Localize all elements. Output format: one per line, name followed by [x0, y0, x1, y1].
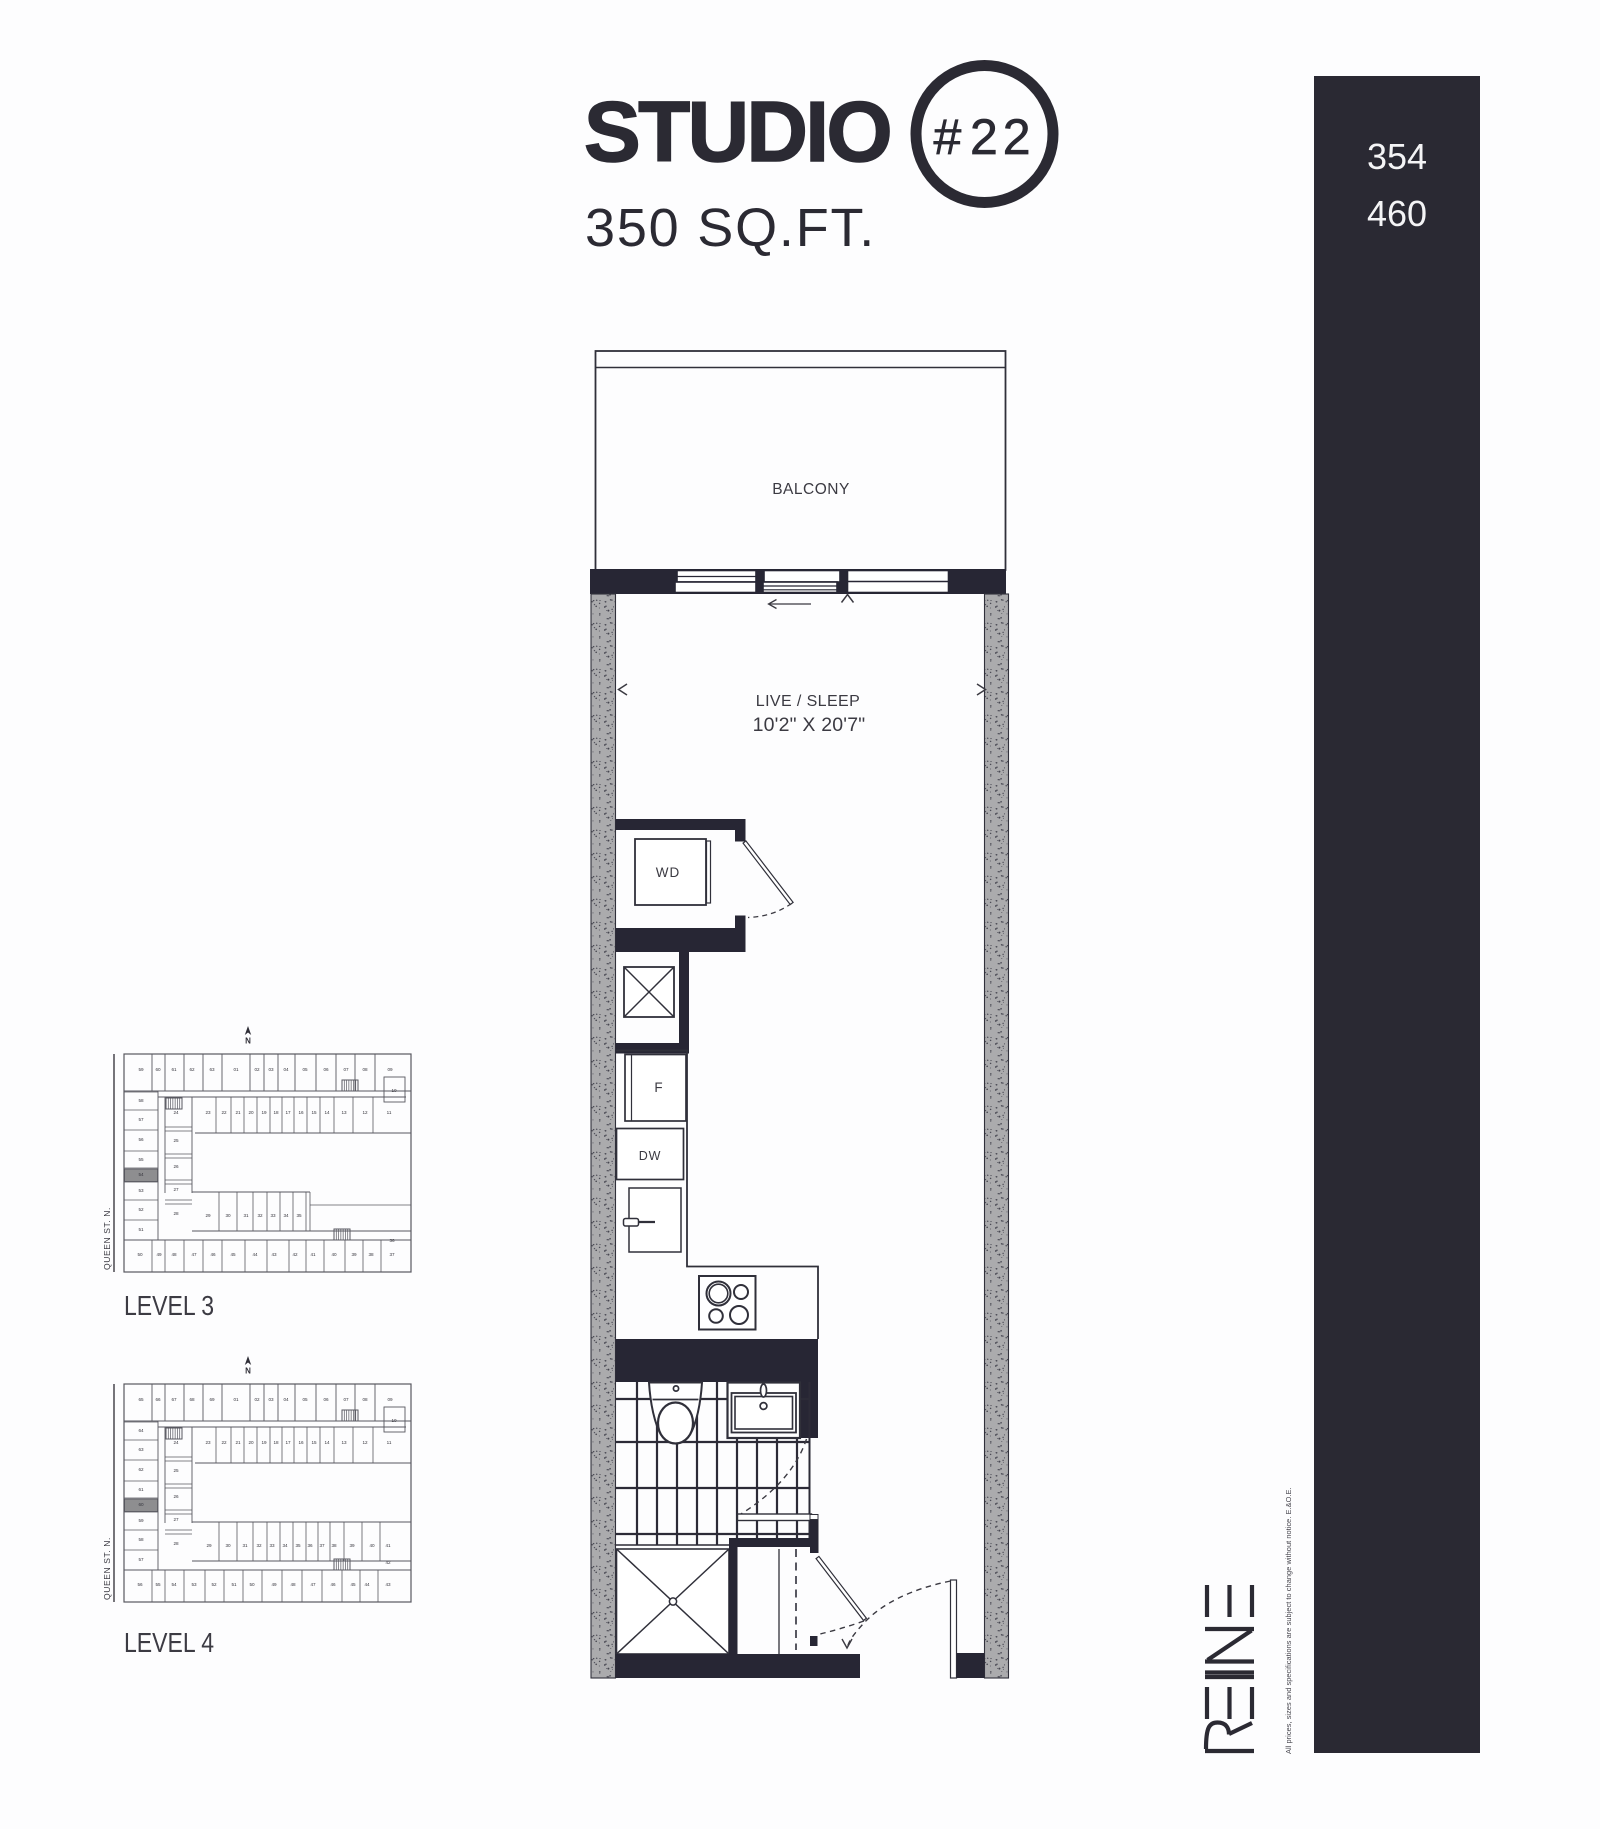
svg-text:21: 21 [235, 1110, 241, 1115]
svg-text:46: 46 [210, 1252, 216, 1257]
svg-text:LEVEL 4: LEVEL 4 [124, 1627, 214, 1658]
svg-text:56: 56 [138, 1137, 144, 1142]
svg-text:17: 17 [285, 1440, 291, 1445]
svg-text:15: 15 [311, 1440, 317, 1445]
svg-text:41: 41 [385, 1543, 391, 1548]
svg-text:43: 43 [385, 1582, 391, 1587]
svg-text:44: 44 [364, 1582, 370, 1587]
svg-text:23: 23 [205, 1440, 211, 1445]
svg-text:40: 40 [331, 1252, 337, 1257]
svg-text:36: 36 [389, 1238, 395, 1243]
svg-text:DW: DW [639, 1149, 661, 1163]
svg-text:55: 55 [155, 1582, 161, 1587]
svg-text:45: 45 [350, 1582, 356, 1587]
svg-text:05: 05 [302, 1067, 308, 1072]
svg-text:18: 18 [273, 1440, 279, 1445]
svg-text:44: 44 [252, 1252, 258, 1257]
svg-text:49: 49 [271, 1582, 277, 1587]
svg-text:63: 63 [209, 1067, 215, 1072]
svg-text:04: 04 [283, 1067, 289, 1072]
svg-text:62: 62 [189, 1067, 195, 1072]
svg-text:04: 04 [283, 1397, 289, 1402]
svg-text:28: 28 [173, 1211, 179, 1216]
svg-text:19: 19 [261, 1110, 267, 1115]
svg-text:24: 24 [173, 1110, 179, 1115]
svg-text:51: 51 [138, 1227, 144, 1232]
svg-text:38: 38 [368, 1252, 374, 1257]
svg-text:29: 29 [205, 1213, 211, 1218]
svg-text:11: 11 [387, 1110, 392, 1115]
svg-text:01: 01 [233, 1067, 239, 1072]
svg-text:QUEEN ST. N.: QUEEN ST. N. [102, 1207, 112, 1270]
svg-text:07: 07 [343, 1067, 349, 1072]
svg-text:13: 13 [341, 1110, 347, 1115]
svg-text:61: 61 [138, 1487, 144, 1492]
svg-text:62: 62 [138, 1467, 144, 1472]
svg-text:26: 26 [173, 1164, 179, 1169]
svg-text:19: 19 [261, 1440, 267, 1445]
svg-text:59: 59 [138, 1067, 144, 1072]
svg-text:23: 23 [205, 1110, 211, 1115]
svg-text:54: 54 [138, 1172, 144, 1177]
svg-text:09: 09 [387, 1397, 393, 1402]
svg-text:08: 08 [362, 1067, 368, 1072]
svg-text:06: 06 [323, 1067, 329, 1072]
svg-text:LIVE / SLEEP: LIVE / SLEEP [756, 693, 860, 710]
svg-text:34: 34 [282, 1543, 288, 1548]
svg-text:01: 01 [233, 1397, 239, 1402]
svg-text:05: 05 [302, 1397, 308, 1402]
svg-text:02: 02 [254, 1067, 260, 1072]
svg-text:29: 29 [206, 1543, 212, 1548]
svg-text:33: 33 [270, 1213, 276, 1218]
svg-text:53: 53 [138, 1188, 144, 1193]
svg-text:50: 50 [137, 1252, 143, 1257]
svg-text:35: 35 [295, 1543, 301, 1548]
svg-text:460: 460 [1367, 193, 1427, 234]
svg-text:16: 16 [298, 1110, 304, 1115]
svg-text:59: 59 [138, 1518, 144, 1523]
svg-text:17: 17 [285, 1110, 291, 1115]
svg-text:WD: WD [656, 865, 681, 880]
svg-text:14: 14 [324, 1110, 330, 1115]
svg-text:65: 65 [138, 1397, 144, 1402]
svg-text:10: 10 [391, 1088, 397, 1093]
svg-text:14: 14 [324, 1440, 330, 1445]
svg-text:12: 12 [362, 1110, 368, 1115]
svg-text:QUEEN ST. N.: QUEEN ST. N. [102, 1537, 112, 1600]
svg-text:38: 38 [331, 1543, 337, 1548]
svg-text:39: 39 [349, 1543, 355, 1548]
svg-text:41: 41 [310, 1252, 316, 1257]
svg-text:09: 09 [387, 1067, 393, 1072]
svg-text:STUDIO: STUDIO [584, 85, 890, 180]
svg-text:37: 37 [389, 1252, 395, 1257]
svg-text:36: 36 [307, 1543, 313, 1548]
svg-text:50: 50 [249, 1582, 255, 1587]
svg-text:68: 68 [189, 1397, 195, 1402]
svg-text:22: 22 [221, 1110, 227, 1115]
svg-text:BALCONY: BALCONY [772, 481, 850, 498]
svg-text:37: 37 [319, 1543, 325, 1548]
svg-text:49: 49 [156, 1252, 162, 1257]
svg-text:52: 52 [138, 1207, 144, 1212]
svg-text:20: 20 [248, 1440, 254, 1445]
svg-text:30: 30 [225, 1213, 231, 1218]
svg-text:All prices, sizes and specific: All prices, sizes and specifications are… [1284, 1487, 1293, 1754]
svg-text:31: 31 [243, 1213, 249, 1218]
svg-text:57: 57 [138, 1557, 144, 1562]
svg-text:08: 08 [362, 1397, 368, 1402]
svg-text:06: 06 [323, 1397, 329, 1402]
svg-text:18: 18 [273, 1110, 279, 1115]
svg-text:27: 27 [173, 1517, 179, 1522]
svg-text:48: 48 [290, 1582, 296, 1587]
svg-text:02: 02 [254, 1397, 260, 1402]
svg-text:58: 58 [138, 1098, 144, 1103]
svg-text:53: 53 [191, 1582, 197, 1587]
svg-text:LEVEL 3: LEVEL 3 [124, 1290, 214, 1321]
svg-text:34: 34 [283, 1213, 289, 1218]
svg-text:12: 12 [362, 1440, 368, 1445]
svg-text:35: 35 [296, 1213, 302, 1218]
svg-text:58: 58 [138, 1537, 144, 1542]
svg-text:N: N [245, 1037, 251, 1046]
svg-text:39: 39 [351, 1252, 357, 1257]
svg-text:30: 30 [225, 1543, 231, 1548]
svg-text:31: 31 [242, 1543, 248, 1548]
svg-text:10: 10 [391, 1418, 397, 1423]
svg-text:350 SQ.FT.: 350 SQ.FT. [585, 198, 876, 258]
svg-text:40: 40 [369, 1543, 375, 1548]
svg-text:32: 32 [257, 1213, 263, 1218]
svg-text:24: 24 [173, 1440, 179, 1445]
svg-text:56: 56 [137, 1582, 143, 1587]
svg-text:51: 51 [231, 1582, 237, 1587]
svg-text:22: 22 [221, 1440, 227, 1445]
svg-text:60: 60 [138, 1502, 144, 1507]
svg-text:03: 03 [268, 1397, 274, 1402]
svg-text:15: 15 [311, 1110, 317, 1115]
svg-text:63: 63 [138, 1447, 144, 1452]
svg-text:354: 354 [1367, 136, 1427, 177]
svg-text:33: 33 [269, 1543, 275, 1548]
svg-text:F: F [654, 1080, 663, 1095]
svg-text:54: 54 [171, 1582, 177, 1587]
svg-text:32: 32 [256, 1543, 262, 1548]
svg-text:27: 27 [173, 1187, 179, 1192]
svg-text:22: 22 [970, 109, 1036, 165]
svg-text:11: 11 [387, 1440, 392, 1445]
svg-text:52: 52 [211, 1582, 217, 1587]
svg-text:43: 43 [271, 1252, 277, 1257]
svg-text:48: 48 [171, 1252, 177, 1257]
svg-text:03: 03 [268, 1067, 274, 1072]
svg-text:42: 42 [292, 1252, 298, 1257]
svg-text:26: 26 [173, 1494, 179, 1499]
svg-text:55: 55 [138, 1157, 144, 1162]
svg-text:42: 42 [385, 1560, 391, 1565]
svg-text:47: 47 [191, 1252, 197, 1257]
svg-text:25: 25 [173, 1468, 179, 1473]
svg-text:07: 07 [343, 1397, 349, 1402]
svg-text:66: 66 [155, 1397, 161, 1402]
svg-text:61: 61 [171, 1067, 177, 1072]
svg-text:13: 13 [341, 1440, 347, 1445]
svg-text:45: 45 [230, 1252, 236, 1257]
svg-text:10'2" X 20'7": 10'2" X 20'7" [753, 714, 866, 736]
svg-text:46: 46 [330, 1582, 336, 1587]
svg-text:N: N [245, 1367, 251, 1376]
svg-text:67: 67 [171, 1397, 177, 1402]
svg-text:25: 25 [173, 1138, 179, 1143]
svg-text:28: 28 [173, 1541, 179, 1546]
svg-text:20: 20 [248, 1110, 254, 1115]
svg-text:21: 21 [235, 1440, 241, 1445]
svg-text:64: 64 [138, 1428, 144, 1433]
svg-text:#: # [934, 109, 962, 165]
svg-text:60: 60 [155, 1067, 161, 1072]
svg-text:47: 47 [310, 1582, 316, 1587]
svg-text:16: 16 [298, 1440, 304, 1445]
svg-text:69: 69 [209, 1397, 215, 1402]
svg-text:57: 57 [138, 1117, 144, 1122]
